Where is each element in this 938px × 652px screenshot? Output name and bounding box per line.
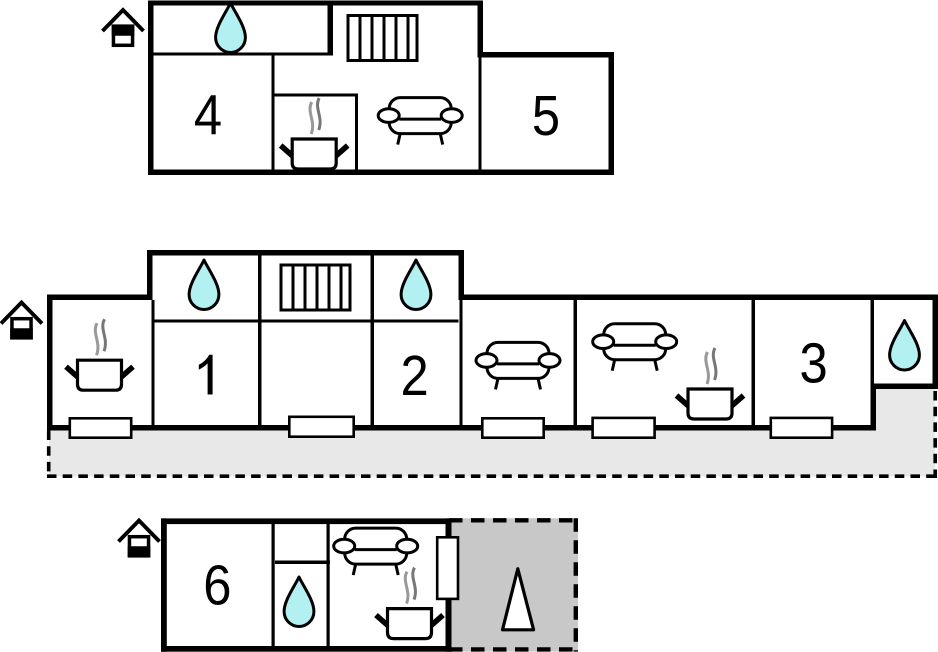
svg-text:5: 5: [532, 84, 560, 147]
svg-text:4: 4: [194, 84, 222, 147]
svg-text:6: 6: [203, 554, 231, 617]
svg-text:3: 3: [799, 332, 827, 395]
svg-text:2: 2: [400, 344, 428, 407]
